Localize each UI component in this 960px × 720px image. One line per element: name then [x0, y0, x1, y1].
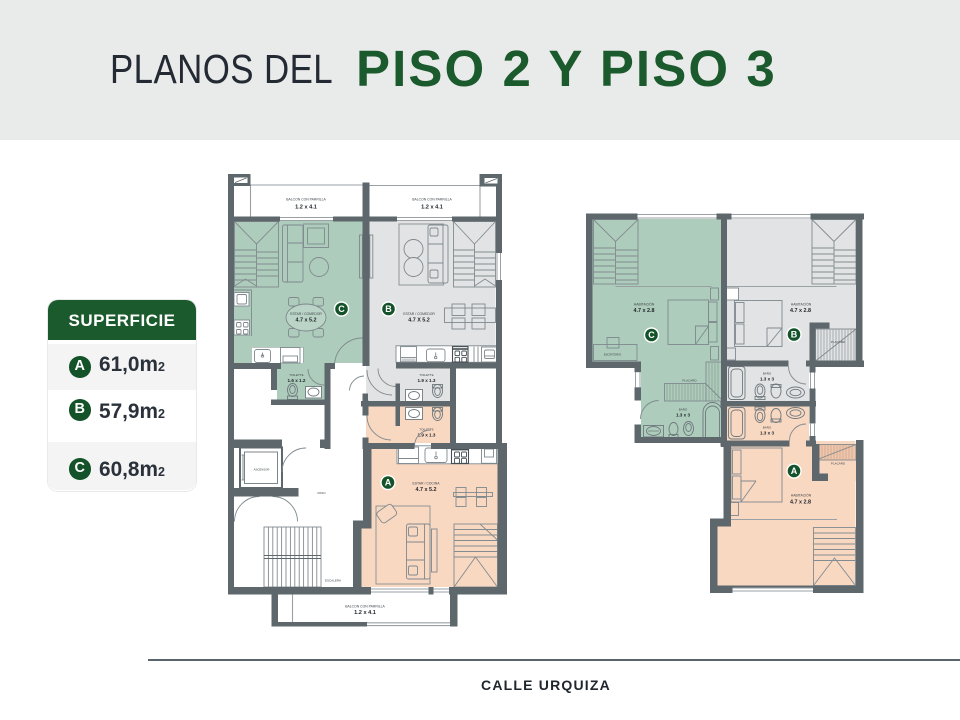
- svg-text:ESTAR / COCINA: ESTAR / COCINA: [412, 482, 440, 486]
- svg-text:ESTAR / COMEDOR: ESTAR / COMEDOR: [403, 312, 435, 316]
- svg-text:B: B: [791, 330, 798, 340]
- svg-text:PLACARD: PLACARD: [831, 462, 846, 466]
- svg-text:BALCON CON PARRILLA: BALCON CON PARRILLA: [412, 198, 452, 202]
- svg-text:1.3 x 3: 1.3 x 3: [760, 431, 774, 436]
- svg-text:HABITACIÓN: HABITACIÓN: [791, 302, 812, 307]
- svg-text:C: C: [338, 304, 345, 314]
- svg-text:BAÑO: BAÑO: [763, 425, 772, 430]
- svg-text:1.2 x 4.1: 1.2 x 4.1: [354, 610, 376, 616]
- svg-text:ESCALERA: ESCALERA: [325, 579, 341, 583]
- svg-text:A: A: [791, 466, 798, 476]
- svg-text:1.9 x 1.3: 1.9 x 1.3: [418, 378, 436, 383]
- svg-text:BAÑO: BAÑO: [679, 407, 688, 412]
- svg-text:TOILETTE: TOILETTE: [289, 373, 303, 377]
- svg-text:PASO: PASO: [317, 491, 326, 495]
- svg-text:ASCENSOR: ASCENSOR: [254, 468, 270, 472]
- svg-text:C: C: [648, 330, 655, 340]
- svg-text:ESCRITORIO: ESCRITORIO: [604, 353, 622, 357]
- svg-text:TOILETTE: TOILETTE: [419, 373, 433, 377]
- svg-text:1.3 x 3: 1.3 x 3: [676, 413, 690, 418]
- svg-text:1.6 x 1.2: 1.6 x 1.2: [288, 378, 306, 383]
- svg-text:4.7 x 2.8: 4.7 x 2.8: [790, 308, 811, 314]
- svg-text:4.7 x 2.8: 4.7 x 2.8: [790, 500, 811, 506]
- svg-text:PLACARD: PLACARD: [831, 340, 846, 344]
- svg-text:ESTAR / COMEDOR: ESTAR / COMEDOR: [290, 312, 322, 316]
- svg-text:4.7 x 2.8: 4.7 x 2.8: [634, 308, 655, 314]
- svg-text:A: A: [385, 478, 392, 488]
- svg-text:HABITACIÓN: HABITACIÓN: [634, 302, 655, 307]
- svg-text:BAÑO: BAÑO: [763, 371, 772, 376]
- svg-text:1.2 x 4.1: 1.2 x 4.1: [295, 205, 317, 211]
- svg-text:4.7 x 5.2: 4.7 x 5.2: [296, 318, 317, 324]
- svg-text:4.7 x 5.2: 4.7 x 5.2: [416, 487, 437, 493]
- svg-text:1.3 x 3: 1.3 x 3: [760, 377, 774, 382]
- svg-text:1.2 x 4.1: 1.2 x 4.1: [421, 205, 443, 211]
- svg-text:PLACARD: PLACARD: [682, 379, 697, 383]
- svg-text:BALCON CON PARRILLA: BALCON CON PARRILLA: [286, 198, 326, 202]
- svg-text:BALCON CON PARRILLA: BALCON CON PARRILLA: [345, 605, 385, 609]
- svg-text:HABITACIÓN: HABITACIÓN: [791, 493, 812, 498]
- svg-text:B: B: [385, 304, 392, 314]
- svg-text:4.7 X 5.2: 4.7 X 5.2: [408, 318, 430, 324]
